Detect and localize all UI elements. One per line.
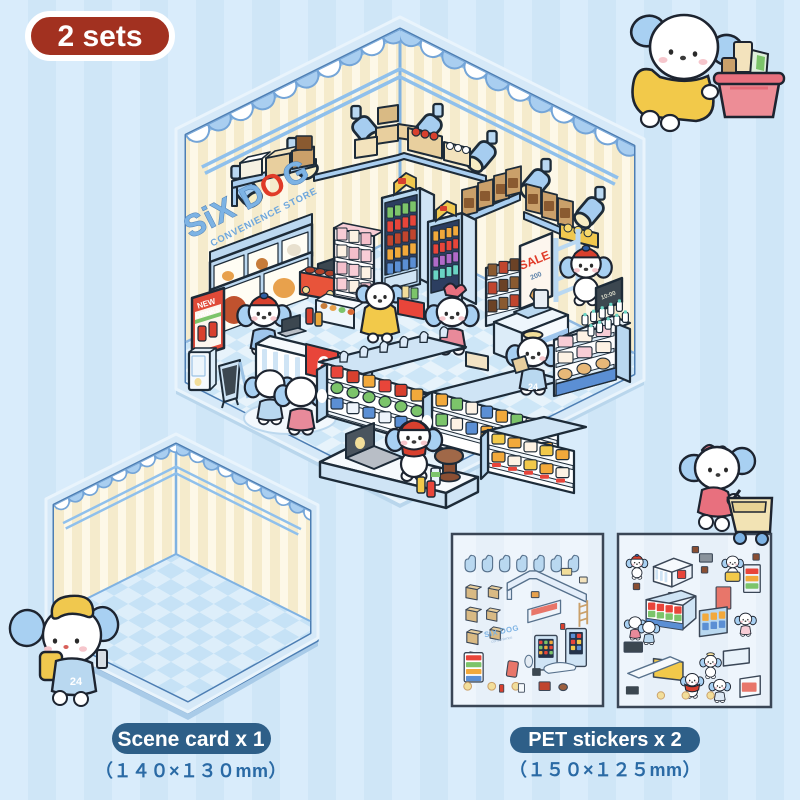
svg-text:24: 24 (70, 676, 83, 688)
svg-text:（１５０×１２５mm）: （１５０×１２５mm） (509, 760, 701, 780)
svg-text:（１４０×１３０mm）: （１４０×１３０mm） (95, 761, 287, 781)
svg-text:PET stickers x 2: PET stickers x 2 (528, 729, 681, 751)
svg-text:Scene card x 1: Scene card x 1 (117, 728, 264, 751)
svg-text:2 sets: 2 sets (57, 20, 142, 53)
svg-text:24: 24 (528, 382, 538, 392)
